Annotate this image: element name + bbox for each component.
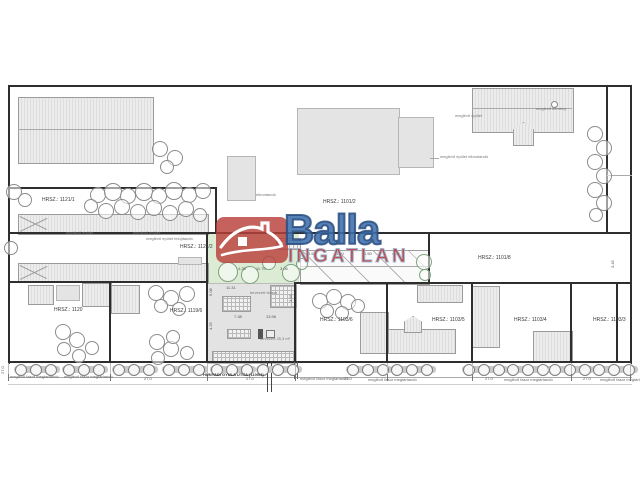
- dimension: 4.25: [209, 322, 213, 330]
- parcel-label: HRSZ.: 1103/5: [432, 318, 465, 323]
- site-plan-page: HRSZ.: 1101/2HRSZ.: 1121/1HRSZ.: 1121/2H…: [0, 0, 640, 480]
- dimension: 27.0: [144, 377, 152, 381]
- dimension: 3.45: [611, 260, 615, 268]
- dimension: 27.0: [246, 377, 254, 381]
- dimension: 4.50: [364, 252, 372, 256]
- dimension: 3.45: [289, 294, 293, 302]
- note: meglévő épület: [455, 114, 482, 118]
- note: meglévő épület: [133, 231, 160, 235]
- dimension: 11.70: [256, 267, 266, 271]
- note: tervezett 25,3 m²: [260, 337, 290, 341]
- note: meglévő épület: [66, 231, 93, 235]
- dimension: 5.08: [209, 288, 213, 296]
- note: meglévő kémény: [536, 107, 566, 111]
- note: meglévő épület elbontandó: [440, 155, 488, 159]
- dimension: 4.50: [336, 252, 344, 256]
- dimension: 4.50: [308, 252, 316, 256]
- dimension: 27.0: [344, 377, 352, 381]
- note: meglévő épület felújítandó: [146, 237, 193, 241]
- street-note: meglévő fasor megtartandó: [64, 375, 113, 379]
- note: elbontandó: [256, 193, 276, 197]
- dimension: 27.0: [1, 366, 5, 374]
- dimension: 13.96: [266, 315, 276, 319]
- dimension: 3.06: [280, 267, 288, 271]
- street-note: meglévő fasor megtartandó: [10, 375, 59, 379]
- street-note: meglévő fasor megtartandó: [600, 378, 640, 382]
- dimension: 4.25: [238, 267, 246, 271]
- parcel-label: HRSZ.: 1103/3: [593, 318, 626, 323]
- parcel-label: HRSZ.: 1101/8: [478, 256, 511, 261]
- dimension: 11.31: [226, 286, 236, 290]
- dimension: 7.38: [234, 315, 242, 319]
- parcel-label: HRSZ.: 1120: [54, 308, 83, 313]
- parcel-label: HRSZ.: 1121/2: [180, 245, 213, 250]
- street-note: meglévő fasor megtartandó: [300, 377, 349, 381]
- dimension: 4.50: [392, 252, 400, 256]
- parcel-label: HRSZ.: 1119/6: [170, 309, 202, 314]
- parcel-label: HRSZ.: 1103/4: [514, 318, 547, 323]
- street-note: meglévő fasor megtartandó: [504, 378, 553, 382]
- dimension: 27.0: [583, 377, 591, 381]
- note: tervezett terasz: [250, 291, 277, 295]
- parcel-label: HRSZ.: 1101/2: [323, 200, 356, 205]
- dimension: 27.0: [485, 377, 493, 381]
- annotation-layer: HRSZ.: 1101/2HRSZ.: 1121/1HRSZ.: 1121/2H…: [0, 0, 640, 480]
- street-note: meglévő fasor megtartandó: [368, 378, 417, 382]
- street-name: HUNYADI GYULA UTCA (1100/4): [203, 373, 264, 377]
- parcel-label: HRSZ.: 1121/1: [42, 198, 75, 203]
- parcel-label: HRSZ.: 1103/6: [320, 318, 353, 323]
